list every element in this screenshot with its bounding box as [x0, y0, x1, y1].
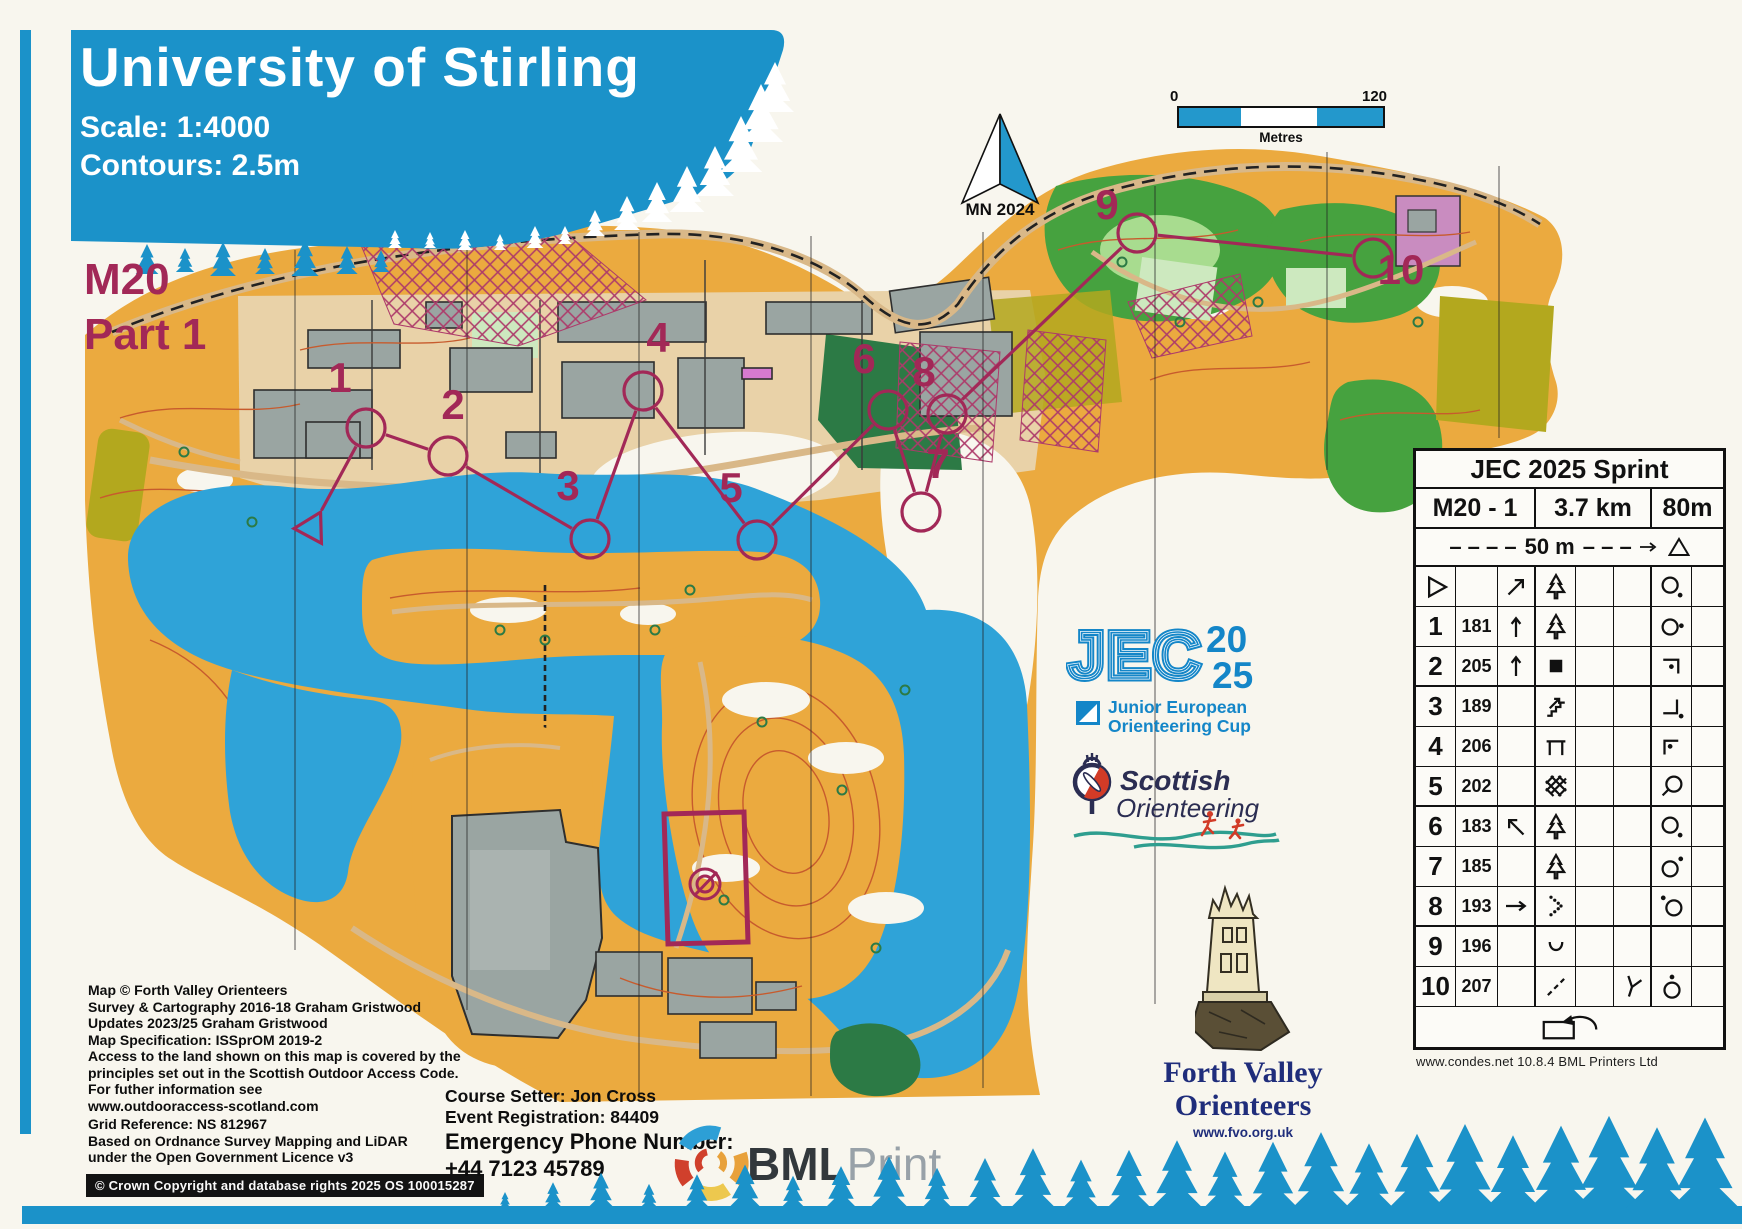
col-d-symbol: [1536, 647, 1576, 685]
col-d-symbol: [1536, 967, 1576, 1006]
control-number-label-3: 3: [556, 462, 579, 509]
col-h-symbol: [1692, 567, 1723, 606]
table-course-info-row: M20 - 1 3.7 km 80m: [1416, 489, 1723, 529]
path-dashed-icon: [1541, 972, 1571, 1002]
course-length: 3.7 km: [1536, 489, 1652, 527]
building-icon: [1541, 651, 1571, 681]
control-number-label-9: 9: [1095, 181, 1118, 228]
control-number-label-1: 1: [328, 354, 351, 401]
col-c-symbol: [1498, 607, 1536, 646]
col-d-symbol: [1536, 927, 1576, 966]
bottom-tree-strip: [0, 1090, 1742, 1229]
corner-nw-dot-icon: [1657, 732, 1687, 762]
col-c-symbol: [1498, 967, 1536, 1006]
control-row-8: 8193: [1416, 887, 1723, 927]
control-number: 3: [1416, 687, 1456, 726]
tree-silhouette-icon: [1107, 1150, 1151, 1208]
col-c-symbol: [1498, 767, 1536, 805]
col-e-symbol: [1576, 567, 1614, 606]
print-software-credit: www.condes.net 10.8.4 BML Printers Ltd: [1416, 1054, 1658, 1069]
jec-2025-logo: JEC JEC JEC 20 25 Junior European Orient…: [1066, 606, 1276, 746]
col-c-symbol: [1498, 567, 1536, 606]
scanned-orienteering-map-page: 12345678910 University of Stirling Scale…: [0, 0, 1742, 1229]
control-code: 207: [1456, 967, 1498, 1006]
circle-dot-nw-icon: [1657, 891, 1687, 921]
control-number-label-7: 7: [926, 440, 949, 487]
arrow-ne-icon: [1501, 572, 1531, 602]
map-credit-block: Map © Forth Valley Orienteers Survey & C…: [88, 982, 421, 1048]
col-c-symbol: [1498, 847, 1536, 886]
finish-symbol-cell: [1416, 1007, 1723, 1047]
start-distance: 50 m: [1525, 534, 1575, 560]
junction-icon: [1617, 972, 1647, 1002]
corner-ne-dot-icon: [1657, 651, 1687, 681]
tree-silhouette-icon: [728, 1165, 761, 1209]
control-number-label-10: 10: [1378, 246, 1425, 293]
col-f-symbol: [1614, 607, 1652, 646]
circle-dot-se-icon: [1657, 812, 1687, 842]
col-e-symbol: [1576, 927, 1614, 966]
col-d-symbol: [1536, 727, 1576, 766]
col-c-symbol: [1498, 887, 1536, 925]
tree-silhouette-icon: [373, 250, 390, 272]
control-row-7: 7185: [1416, 847, 1723, 887]
tree-silhouette-icon: [1204, 1152, 1247, 1209]
left-edge-strip: [20, 30, 31, 1134]
control-number: 9: [1416, 927, 1456, 966]
col-e-symbol: [1576, 887, 1614, 925]
map-contours-label: Contours: 2.5m: [80, 147, 640, 185]
tree-silhouette-icon: [1010, 1148, 1055, 1208]
start-row: [1416, 567, 1723, 607]
col-h-symbol: [1692, 647, 1723, 685]
control-number: 6: [1416, 807, 1456, 846]
col-h-symbol: [1692, 847, 1723, 886]
corner-se-dot-icon: [1657, 692, 1687, 722]
scalebar-max: 120: [1362, 88, 1387, 105]
tree-silhouette-icon: [1530, 1126, 1593, 1208]
col-c-symbol: [1498, 647, 1536, 685]
tree-silhouette-icon: [1574, 1116, 1644, 1208]
control-row-9: 9196: [1416, 927, 1723, 967]
control-code: 185: [1456, 847, 1498, 886]
arrow-nw-icon: [1501, 812, 1531, 842]
col-f-symbol: [1614, 727, 1652, 766]
finish-row: [1416, 1007, 1723, 1047]
title-banner: University of Stirling Scale: 1:4000 Con…: [80, 40, 640, 184]
tree-silhouette-icon: [640, 1184, 658, 1208]
thicket-icon: [1541, 771, 1571, 801]
circle-dot-e-icon: [1657, 612, 1687, 642]
col-e-symbol: [1576, 647, 1614, 685]
scalebar-zero: 0: [1170, 88, 1178, 105]
tree-silhouette-icon: [210, 242, 236, 276]
col-f-symbol: [1614, 807, 1652, 846]
dash-right: – – –: [1583, 534, 1632, 560]
jec-tagline-1: Junior European: [1108, 697, 1247, 717]
control-number-label-6: 6: [852, 335, 875, 382]
scottish-orienteering-logo: Scottish Orienteering: [1068, 748, 1283, 863]
col-c-symbol: [1498, 727, 1536, 766]
col-g-symbol: [1652, 727, 1692, 766]
dash-left: – – – –: [1449, 534, 1516, 560]
control-code: 181: [1456, 607, 1498, 646]
wave-lines: [1074, 832, 1279, 847]
control-row-5: 5202: [1416, 767, 1723, 807]
col-f-symbol: [1614, 567, 1652, 606]
tree-silhouette-icon: [1063, 1160, 1100, 1208]
col-e-symbol: [1576, 727, 1614, 766]
col-d-symbol: [1536, 807, 1576, 846]
control-rows: 1181220531894206520261837185819391961020…: [1416, 567, 1723, 1047]
peninsula: [412, 722, 602, 1068]
start-triangle-icon: [1668, 537, 1690, 557]
tree-silhouette-icon: [966, 1158, 1004, 1208]
tree-silhouette-icon: [1151, 1140, 1203, 1208]
tree-silhouette-icon: [1344, 1143, 1393, 1208]
control-code: [1456, 567, 1498, 606]
col-e-symbol: [1576, 807, 1614, 846]
control-code: 196: [1456, 927, 1498, 966]
control-number-label-2: 2: [441, 381, 464, 428]
col-h-symbol: [1692, 807, 1723, 846]
jec-year-bottom: 25: [1212, 655, 1253, 696]
jec-tagline-2: Orienteering Cup: [1108, 716, 1251, 736]
control-code: 205: [1456, 647, 1498, 685]
col-g-symbol: [1652, 647, 1692, 685]
spruce-icon: [1541, 572, 1571, 602]
wallace-monument-icon: [1195, 880, 1305, 1058]
circle-tail-sw-icon: [1657, 771, 1687, 801]
col-d-symbol: [1536, 607, 1576, 646]
col-g-symbol: [1652, 887, 1692, 925]
spruce-icon: [1541, 852, 1571, 882]
tree-silhouette-icon: [825, 1166, 857, 1208]
col-h-symbol: [1692, 727, 1723, 766]
col-f-symbol: [1614, 847, 1652, 886]
spruce-icon: [1541, 612, 1571, 642]
col-e-symbol: [1576, 607, 1614, 646]
control-code: 183: [1456, 807, 1498, 846]
col-d-symbol: [1536, 687, 1576, 726]
tree-silhouette-icon: [781, 1176, 805, 1208]
col-e-symbol: [1576, 687, 1614, 726]
control-row-4: 4206: [1416, 727, 1723, 767]
col-g-symbol: [1652, 807, 1692, 846]
col-e-symbol: [1576, 847, 1614, 886]
tree-silhouette-icon: [336, 246, 357, 274]
col-h-symbol: [1692, 687, 1723, 726]
col-c-symbol: [1498, 927, 1536, 966]
scottish-logo-line1: Scottish: [1120, 765, 1230, 796]
course-part: Part 1: [84, 307, 206, 362]
col-g-symbol: [1652, 567, 1692, 606]
col-g-symbol: [1652, 847, 1692, 886]
tree-silhouette-icon: [255, 248, 275, 274]
course-climb: 80m: [1652, 489, 1723, 527]
north-arrow-label: MN 2024: [942, 200, 1058, 220]
col-f-symbol: [1614, 687, 1652, 726]
control-row-6: 6183: [1416, 807, 1723, 847]
col-d-symbol: [1536, 567, 1576, 606]
col-g-symbol: [1652, 927, 1692, 966]
tree-silhouette-icon: [1292, 1132, 1350, 1208]
control-number-label-5: 5: [719, 464, 742, 511]
tree-silhouette-icon: [1671, 1118, 1740, 1209]
control-number: [1416, 567, 1456, 606]
table-title: JEC 2025 Sprint: [1416, 451, 1723, 489]
control-row-1: 1181: [1416, 607, 1723, 647]
control-row-3: 3189: [1416, 687, 1723, 727]
spruce-icon: [1541, 812, 1571, 842]
circle-dot-n-icon: [1657, 972, 1687, 1002]
arrow-icon: [1640, 540, 1660, 554]
tree-silhouette-icon: [1485, 1135, 1540, 1208]
control-code: 193: [1456, 887, 1498, 925]
col-d-symbol: [1536, 767, 1576, 805]
control-number: 10: [1416, 967, 1456, 1006]
tree-silhouette-icon: [1433, 1124, 1497, 1208]
course-name: M20 - 1: [1416, 489, 1536, 527]
tree-silhouette-icon: [1248, 1142, 1298, 1208]
control-number-label-4: 4: [646, 314, 670, 361]
arrow-e-icon: [1501, 891, 1531, 921]
circle-dot-ne-icon: [1657, 852, 1687, 882]
control-number: 7: [1416, 847, 1456, 886]
col-c-symbol: [1498, 687, 1536, 726]
control-number: 8: [1416, 887, 1456, 925]
col-f-symbol: [1614, 647, 1652, 685]
control-code: 202: [1456, 767, 1498, 805]
control-number-label-8: 8: [912, 348, 935, 395]
circle-dot-se-icon: [1657, 572, 1687, 602]
arrow-n-icon: [1501, 651, 1531, 681]
control-number: 2: [1416, 647, 1456, 685]
start-distance-row: – – – – 50 m – – –: [1416, 529, 1723, 567]
tree-silhouette-icon: [684, 1174, 710, 1208]
control-code: 206: [1456, 727, 1498, 766]
tree-silhouette-icon: [1389, 1134, 1445, 1208]
course-class-label: M20 Part 1: [84, 252, 206, 362]
tree-silhouette-icon: [869, 1156, 908, 1208]
course-class: M20: [84, 252, 206, 307]
col-g-symbol: [1652, 967, 1692, 1006]
control-number: 1: [1416, 607, 1456, 646]
earth-bank-icon: [1541, 932, 1571, 962]
col-h-symbol: [1692, 767, 1723, 805]
col-h-symbol: [1692, 967, 1723, 1006]
map-scale-label: Scale: 1:4000: [80, 109, 640, 147]
start-triangle-icon: [1421, 572, 1451, 602]
col-e-symbol: [1576, 967, 1614, 1006]
col-h-symbol: [1692, 607, 1723, 646]
veg-boundary-icon: [1541, 891, 1571, 921]
control-code: 189: [1456, 687, 1498, 726]
col-g-symbol: [1652, 607, 1692, 646]
col-f-symbol: [1614, 927, 1652, 966]
fvo-name-line1: Forth Valley: [1118, 1056, 1368, 1089]
jec-year-top: 20: [1206, 619, 1247, 660]
col-g-symbol: [1652, 687, 1692, 726]
control-number: 4: [1416, 727, 1456, 766]
north-arrow-icon: [942, 108, 1058, 208]
scalebar-graphic: [1177, 106, 1385, 128]
col-f-symbol: [1614, 767, 1652, 805]
col-f-symbol: [1614, 887, 1652, 925]
stairs-icon: [1541, 692, 1571, 722]
tree-silhouette-icon: [499, 1192, 511, 1208]
finish-symbol-icon: [1538, 1012, 1602, 1042]
scalebar-unit: Metres: [1177, 130, 1385, 145]
col-d-symbol: [1536, 887, 1576, 925]
control-description-table: JEC 2025 Sprint M20 - 1 3.7 km 80m – – –…: [1413, 448, 1726, 1050]
control-row-10: 10207: [1416, 967, 1723, 1007]
col-d-symbol: [1536, 847, 1576, 886]
page-title: University of Stirling: [80, 40, 640, 95]
canopy-icon: [1541, 732, 1571, 762]
col-e-symbol: [1576, 767, 1614, 805]
tree-silhouette-icon: [1626, 1127, 1687, 1208]
compass-thistle-icon: [1075, 753, 1115, 814]
svg-text:JEC: JEC: [1068, 618, 1202, 692]
tree-silhouette-icon: [922, 1168, 953, 1208]
control-number: 5: [1416, 767, 1456, 805]
tree-silhouette-icon: [543, 1182, 563, 1208]
col-h-symbol: [1692, 927, 1723, 966]
col-c-symbol: [1498, 807, 1536, 846]
col-h-symbol: [1692, 887, 1723, 925]
arrow-n-icon: [1501, 612, 1531, 642]
col-f-symbol: [1614, 967, 1652, 1006]
col-g-symbol: [1652, 767, 1692, 805]
tree-silhouette-icon: [588, 1173, 615, 1208]
control-row-2: 2205: [1416, 647, 1723, 687]
